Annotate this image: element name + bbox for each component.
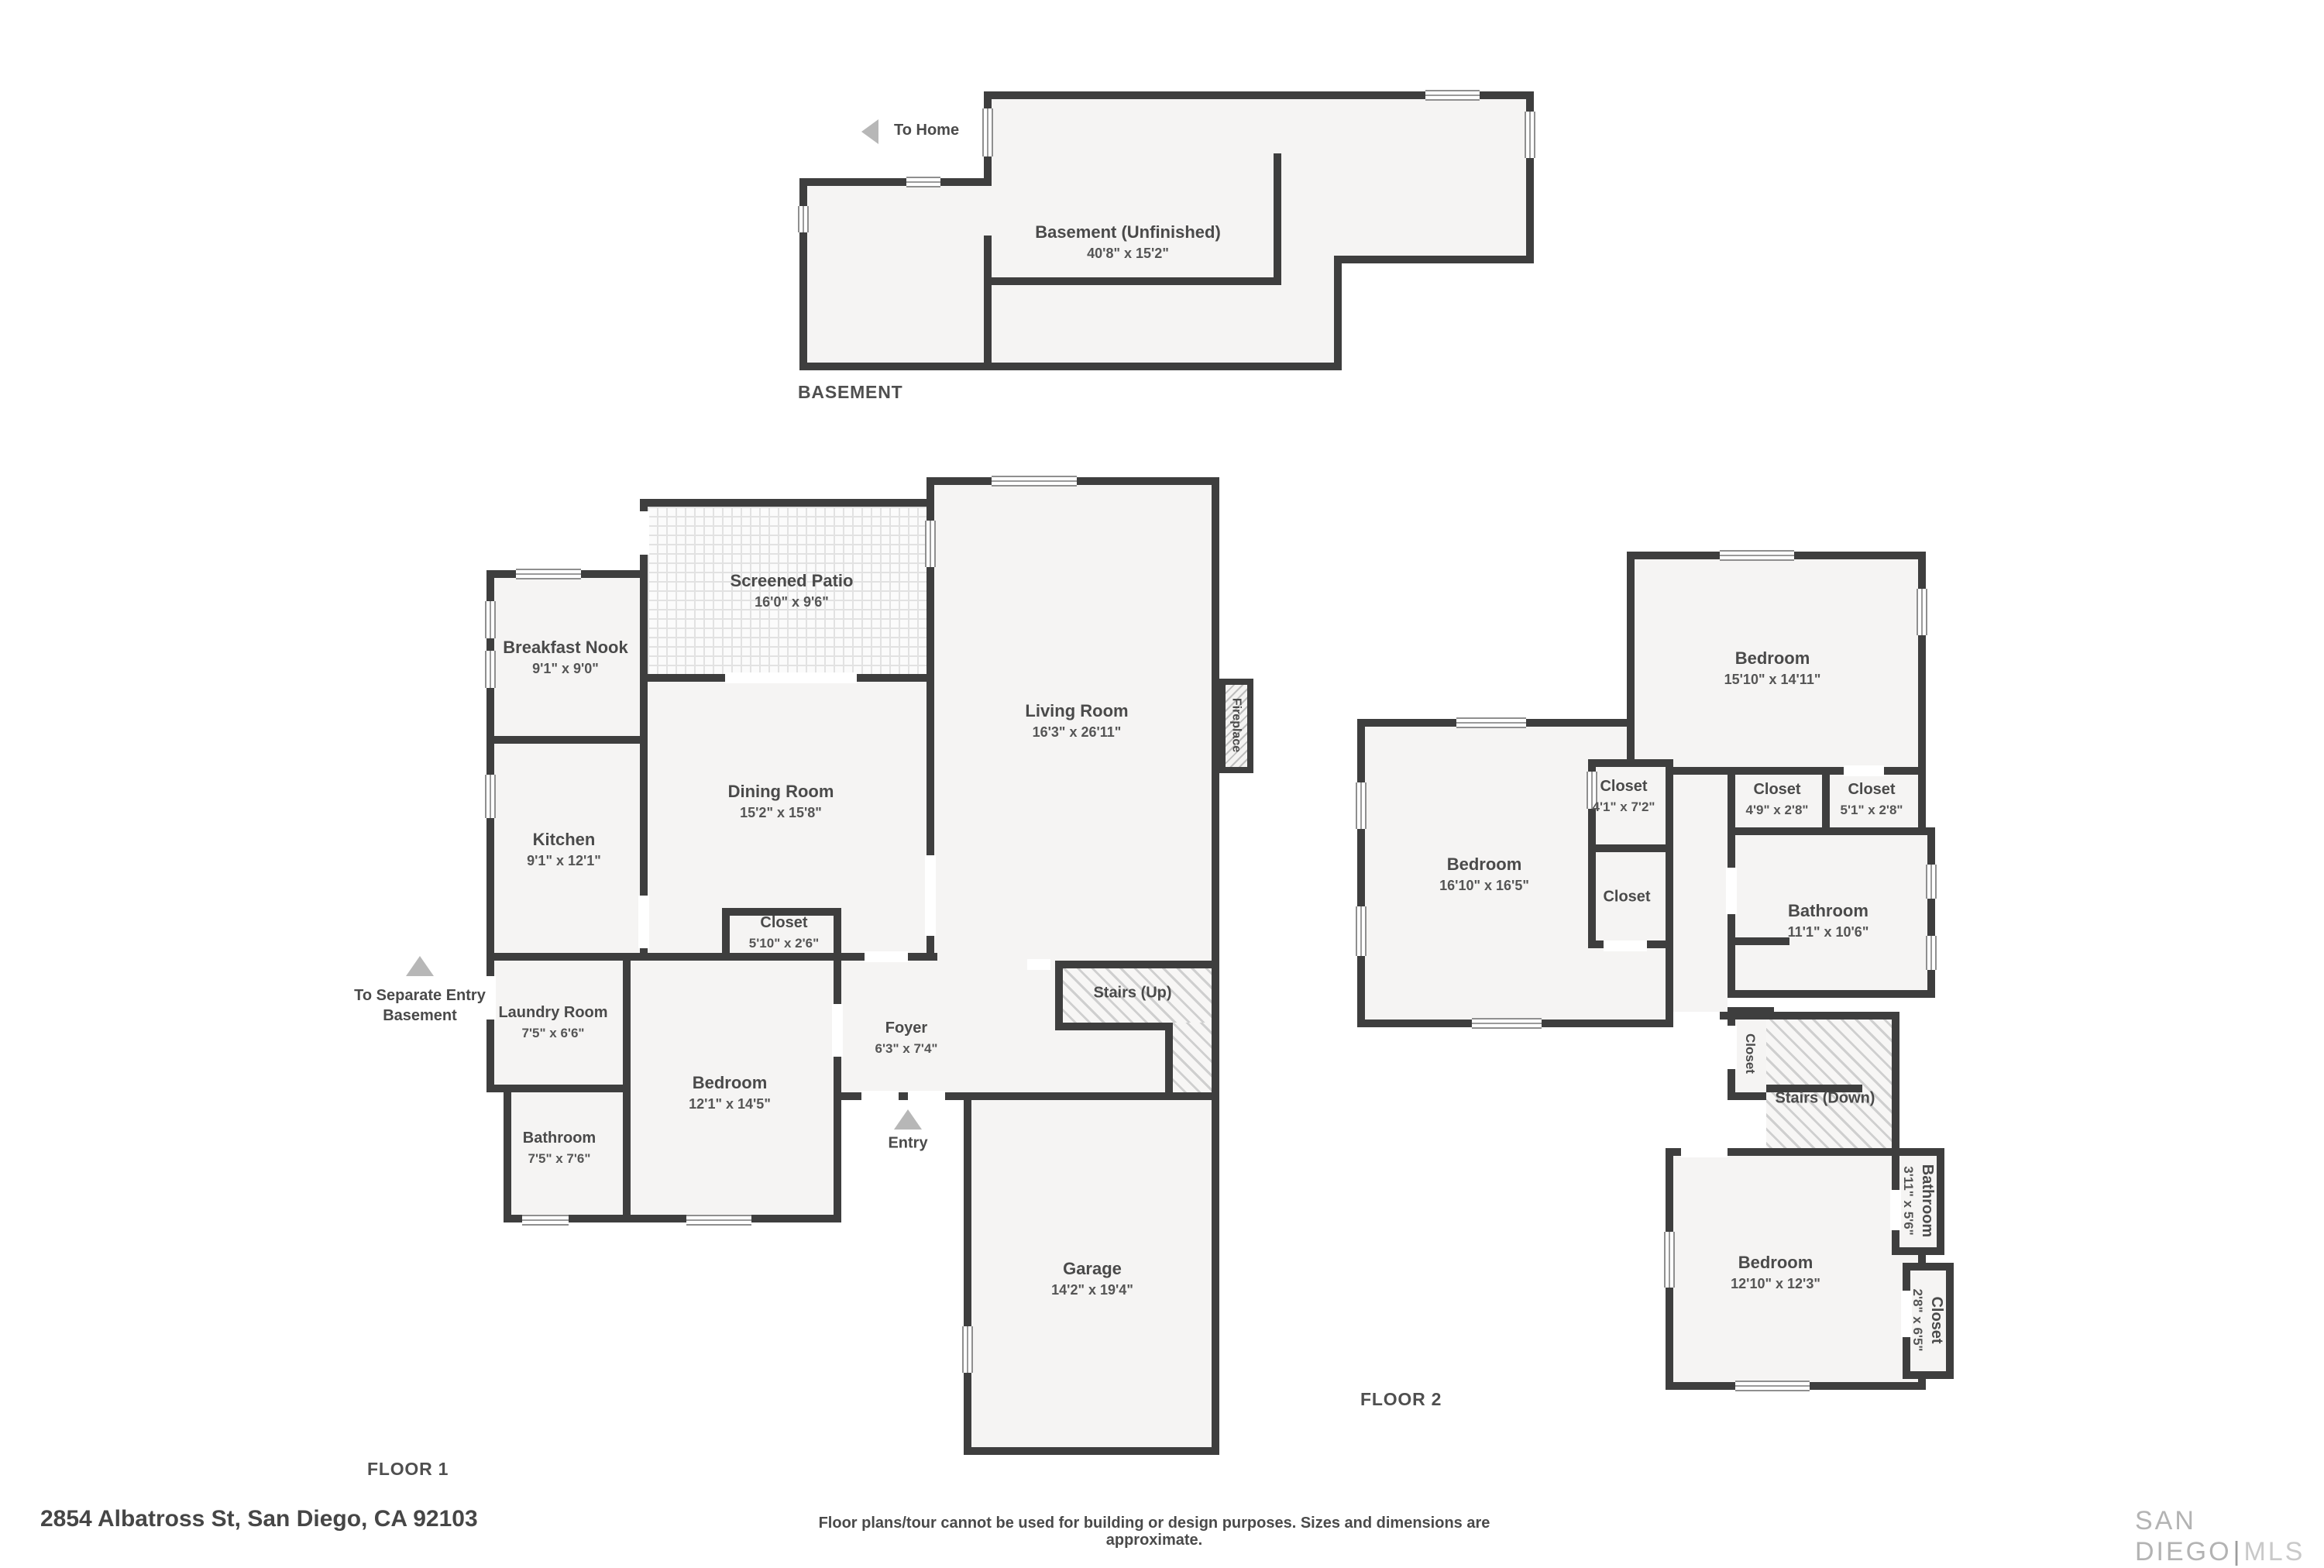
- window: [686, 1215, 751, 1226]
- door-opening: [638, 896, 649, 948]
- entry-label: Entry: [888, 1136, 927, 1155]
- entry-door-opening: [908, 1091, 945, 1102]
- window: [485, 651, 496, 688]
- window: [1917, 589, 1927, 635]
- room-label-garage: Garage 14'2" x 19'4": [1051, 1260, 1133, 1299]
- wall-segment: [1274, 153, 1281, 285]
- window: [962, 1326, 973, 1373]
- to-home-arrow-icon: [861, 119, 878, 144]
- room-label-closet-b-f2: Closet: [1603, 889, 1650, 909]
- room-label-bathroom-f2: Bathroom 11'1" x 10'6": [1788, 903, 1869, 941]
- floor2-caption: FLOOR 2: [1360, 1391, 1442, 1410]
- door-opening: [1604, 940, 1647, 951]
- wall-segment: [1165, 1023, 1173, 1100]
- wall-segment: [799, 178, 992, 186]
- entry-arrow-icon: [894, 1109, 922, 1130]
- window: [522, 1215, 569, 1226]
- door-opening: [1844, 765, 1884, 776]
- disclaimer-text: Floor plans/tour cannot be used for buil…: [782, 1515, 1526, 1549]
- window: [982, 108, 993, 156]
- entry-door-opening: [861, 1091, 899, 1102]
- wall-segment: [1055, 961, 1219, 968]
- stairs-down-label: Stairs (Down): [1776, 1091, 1875, 1110]
- wall-segment: [1055, 961, 1063, 1030]
- room-label-closet-stairs-f2: Closet: [1743, 1033, 1758, 1074]
- window: [1472, 1018, 1542, 1029]
- basement-caption: BASEMENT: [798, 384, 902, 403]
- wall-segment: [984, 236, 992, 370]
- to-home-label: To Home: [894, 122, 959, 139]
- door-opening: [1726, 1026, 1737, 1069]
- window: [1356, 906, 1367, 956]
- window: [1456, 717, 1526, 728]
- separate-entry-label: To Separate Entry Basement: [342, 988, 497, 1026]
- fireplace-label: Fireplace: [1229, 698, 1243, 752]
- window: [485, 601, 496, 638]
- wall-segment: [984, 277, 1281, 285]
- basement-floor-fill: [799, 178, 1342, 370]
- wall-segment: [1892, 1012, 1899, 1156]
- window: [1735, 1381, 1810, 1391]
- door-opening: [865, 951, 908, 962]
- floor-plan-page: To Home Basement (Unfinished) 40'8" x 15…: [0, 0, 2324, 1549]
- room-label-patio: Screened Patio 16'0" x 9'6": [731, 573, 854, 611]
- property-address: 2854 Albatross St, San Diego, CA 92103: [40, 1506, 478, 1532]
- window: [1926, 936, 1937, 970]
- separate-entry-arrow-icon: [406, 956, 434, 976]
- room-label-bathroom-small-f2: Bathroom 3'11" x 5'6": [1901, 1164, 1935, 1237]
- door-opening: [1681, 1147, 1728, 1157]
- room-label-laundry: Laundry Room 7'5" x 6'6": [498, 1005, 607, 1040]
- room-label-basement: Basement (Unfinished) 40'8" x 15'2": [1035, 224, 1221, 263]
- door-opening: [832, 1004, 843, 1057]
- stairs-up-label: Stairs (Up): [1093, 985, 1171, 1005]
- mls-logo-divider: |: [2232, 1537, 2244, 1566]
- wall-segment: [1334, 256, 1534, 263]
- window: [1425, 90, 1480, 101]
- patio-opening: [638, 511, 649, 555]
- wall-segment: [1720, 1012, 1899, 1020]
- mls-logo-primary: SAN DIEGO: [2135, 1506, 2232, 1566]
- window: [1525, 112, 1535, 158]
- floor1-caption: FLOOR 1: [367, 1461, 449, 1480]
- room-label-closet-a-f2: Closet 4'1" x 7'2": [1593, 779, 1655, 814]
- patio-opening: [725, 672, 857, 683]
- window: [1356, 782, 1367, 829]
- room-label-dining: Dining Room 15'2" x 15'8": [728, 783, 834, 822]
- room-label-living: Living Room 16'3" x 26'11": [1025, 703, 1128, 741]
- wall-segment: [1728, 937, 1789, 945]
- room-label-bedroom-left-f2: Bedroom 16'10" x 16'5": [1439, 856, 1529, 895]
- window: [1926, 865, 1937, 899]
- room-label-bedroom-top-f2: Bedroom 15'10" x 14'11": [1724, 650, 1821, 689]
- window: [798, 206, 809, 232]
- room-label-bedroom-bottom-f2: Bedroom 12'10" x 12'3": [1731, 1254, 1820, 1293]
- wall-segment: [1334, 256, 1342, 370]
- mls-logo: SAN DIEGO|MLS: [2135, 1506, 2324, 1568]
- hallway-floor-fill: [1673, 775, 1728, 1012]
- mls-logo-suffix: MLS: [2243, 1537, 2305, 1566]
- room-label-closet-c-f2: Closet 4'9" x 2'8": [1746, 782, 1809, 817]
- room-label-kitchen: Kitchen 9'1" x 12'1": [527, 831, 601, 870]
- wall-segment: [1055, 1023, 1173, 1030]
- door-opening: [1027, 959, 1050, 970]
- window: [485, 775, 496, 818]
- window: [516, 569, 581, 579]
- door-opening: [1726, 868, 1737, 914]
- room-label-closet-small-f2: Closet 2'8" x 6'5": [1910, 1289, 1944, 1352]
- wall-segment: [799, 363, 1342, 370]
- window: [992, 476, 1077, 487]
- door-opening: [925, 855, 936, 936]
- stairs-up-hatch: [1173, 1023, 1212, 1092]
- window: [906, 177, 940, 187]
- room-label-bedroom-f1: Bedroom 12'1" x 14'5": [689, 1075, 771, 1113]
- window: [1720, 550, 1794, 561]
- room-label-nook: Breakfast Nook 9'1" x 9'0": [503, 639, 627, 678]
- room-label-bathroom-f1: Bathroom 7'5" x 7'6": [523, 1130, 596, 1166]
- window: [925, 521, 936, 567]
- room-label-closet-f1: Closet 5'10" x 2'6": [749, 915, 819, 951]
- room-label-closet-d-f2: Closet 5'1" x 2'8": [1841, 782, 1903, 817]
- room-label-foyer: Foyer 6'3" x 7'4": [875, 1020, 938, 1056]
- window: [1664, 1232, 1675, 1288]
- door-opening: [1890, 1190, 1901, 1230]
